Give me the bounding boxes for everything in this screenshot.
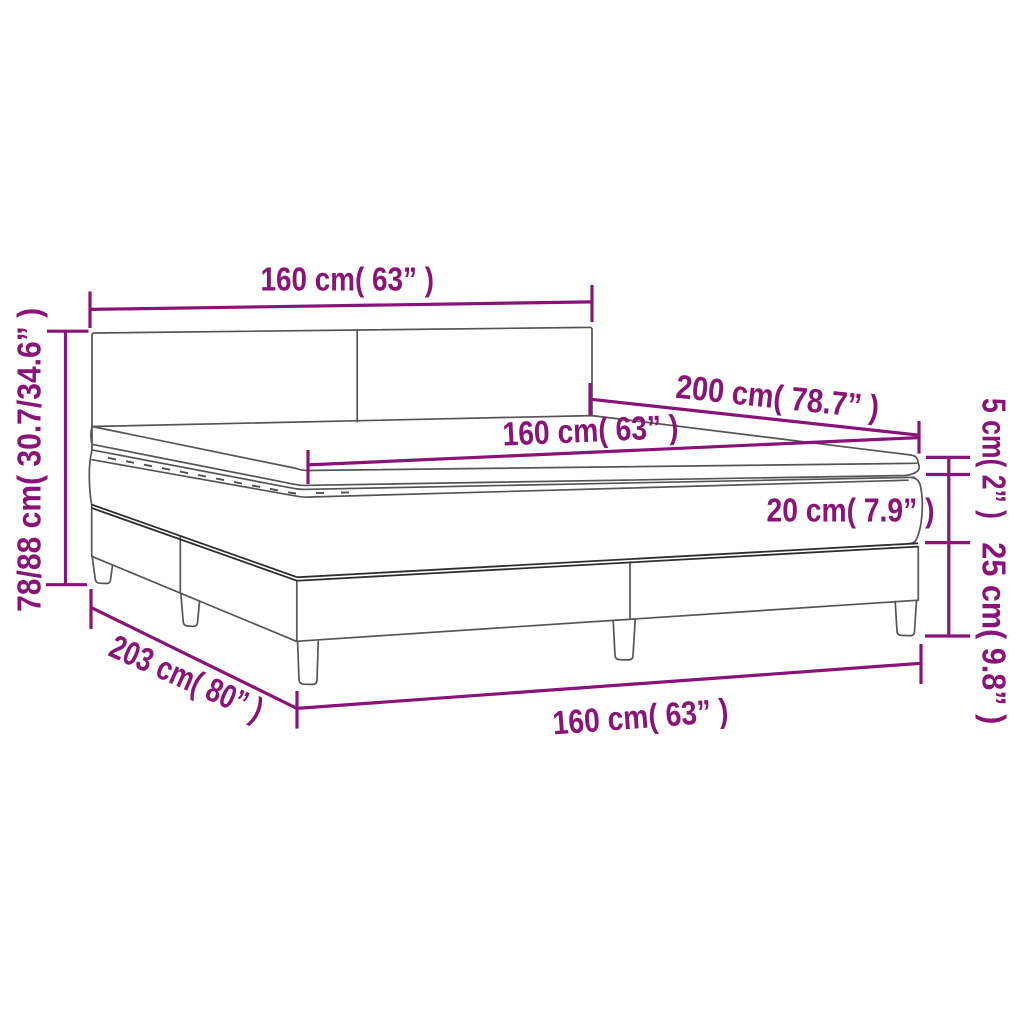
svg-text:160 cm( 63” ): 160 cm( 63” ) <box>261 262 435 299</box>
svg-text:160 cm( 63” ): 160 cm( 63” ) <box>502 409 679 454</box>
svg-text:20 cm( 7.9” ): 20 cm( 7.9” ) <box>767 492 935 529</box>
svg-text:78/88 cm( 30.7/34.6” ): 78/88 cm( 30.7/34.6” ) <box>11 308 48 612</box>
svg-text:25 cm( 9.8” ): 25 cm( 9.8” ) <box>975 542 1012 724</box>
svg-text:5 cm( 2” ): 5 cm( 2” ) <box>975 398 1012 519</box>
